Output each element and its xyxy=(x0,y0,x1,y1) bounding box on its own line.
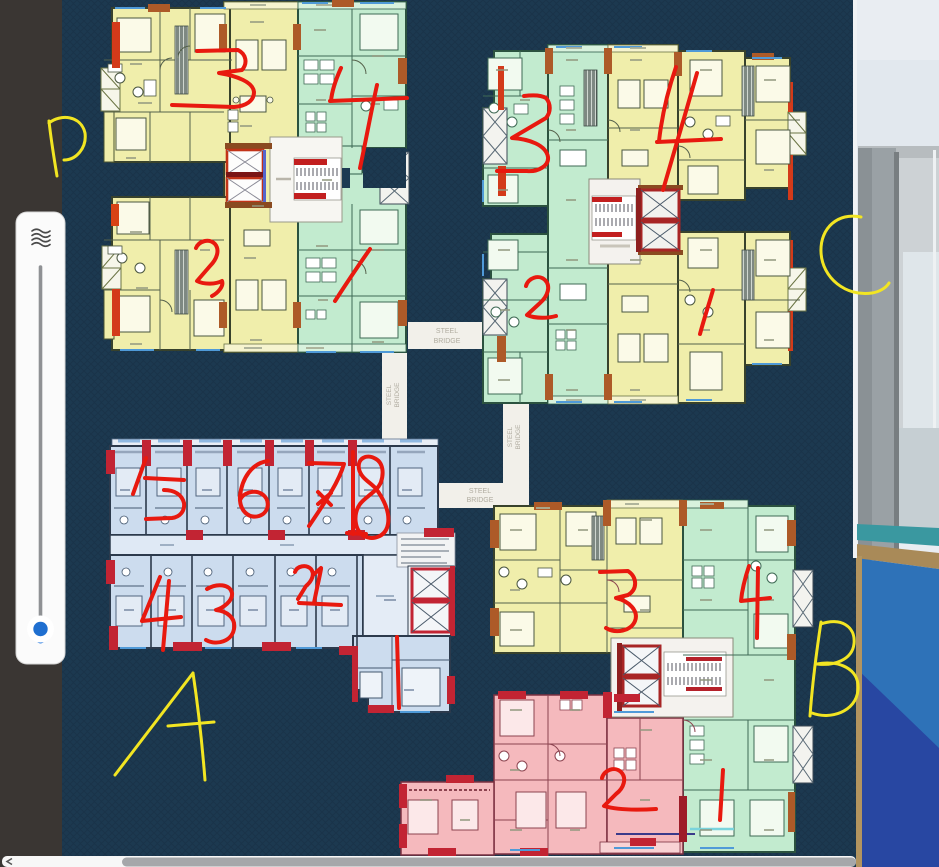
svg-text:BRIDGE: BRIDGE xyxy=(515,424,522,450)
svg-text:BRIDGE: BRIDGE xyxy=(394,382,401,408)
svg-text:STEEL: STEEL xyxy=(507,426,514,447)
svg-text:STEEL: STEEL xyxy=(386,384,393,405)
svg-text:STEEL: STEEL xyxy=(436,328,458,335)
svg-text:STEEL: STEEL xyxy=(469,488,491,495)
svg-text:BRIDGE: BRIDGE xyxy=(467,497,494,504)
svg-text:BRIDGE: BRIDGE xyxy=(434,338,461,345)
